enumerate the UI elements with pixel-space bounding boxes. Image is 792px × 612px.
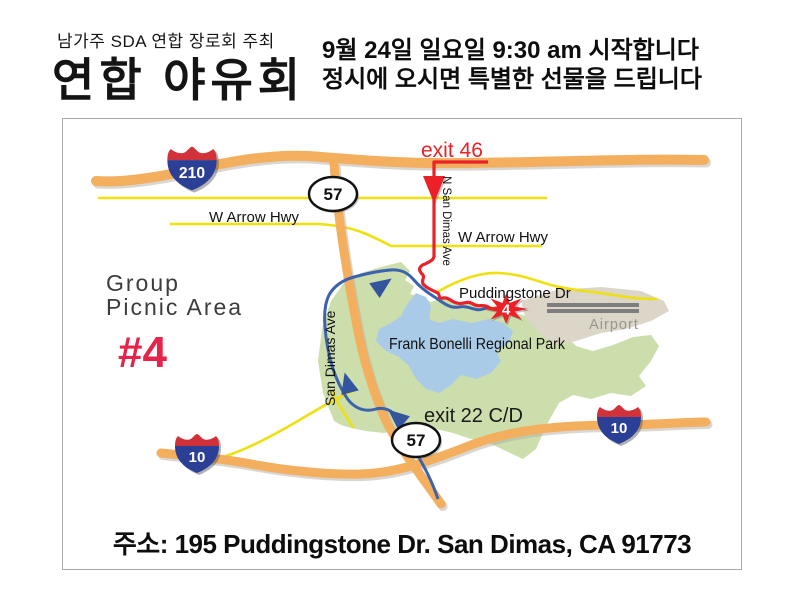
group-picnic-line2: Picnic Area	[106, 294, 243, 320]
map-graphic: Airport exit 46 4	[63, 119, 741, 569]
shield-crest	[597, 405, 641, 417]
w-arrow-hwy-east-label: W Arrow Hwy	[458, 229, 549, 246]
i10-number: 10	[611, 420, 628, 437]
hwy57-shield-south: 57	[392, 423, 442, 459]
hwy57-number: 57	[407, 431, 426, 450]
exit22-label: exit 22 C/D	[424, 405, 523, 427]
airport-label: Airport	[589, 317, 639, 333]
puddingstone-dr-label: Puddingstone Dr	[459, 285, 571, 302]
event-info-line2: 정시에 오시면 특별한 선물을 드립니다	[322, 65, 782, 94]
i10-shield-east: 10	[597, 405, 643, 446]
event-info-line1: 9월 24일 일요일 9:30 am 시작합니다	[322, 36, 782, 65]
event-title: 연합 야유회	[52, 44, 305, 110]
group-picnic-number: #4	[118, 328, 167, 377]
i210-number: 210	[179, 165, 205, 182]
park-label: Frank Bonelli Regional Park	[389, 336, 566, 353]
group-picnic-line1: Group	[106, 270, 180, 296]
san-dimas-ave-label: San Dimas Ave	[322, 310, 338, 406]
runway-bar-bottom	[547, 309, 639, 313]
i210-shield: 210	[167, 147, 219, 193]
hwy57-number: 57	[324, 185, 343, 204]
hwy57-shield-north: 57	[309, 177, 359, 213]
shield-crest	[175, 434, 219, 446]
i10-number: 10	[189, 449, 206, 466]
n-san-dimas-ave-label: N San Dimas Ave	[440, 176, 452, 266]
map-frame: Airport exit 46 4	[62, 118, 742, 570]
exit46-label: exit 46	[421, 139, 483, 162]
address: 주소: 195 Puddingstone Dr. San Dimas, CA 9…	[63, 524, 741, 561]
w-arrow-hwy-west-label: W Arrow Hwy	[209, 209, 300, 226]
event-info: 9월 24일 일요일 9:30 am 시작합니다 정시에 오시면 특별한 선물을…	[322, 36, 782, 94]
shield-crest	[167, 147, 216, 160]
i10-shield-west: 10	[175, 434, 221, 475]
runway-bar-top	[547, 303, 639, 307]
marker-number: 4	[502, 302, 511, 319]
